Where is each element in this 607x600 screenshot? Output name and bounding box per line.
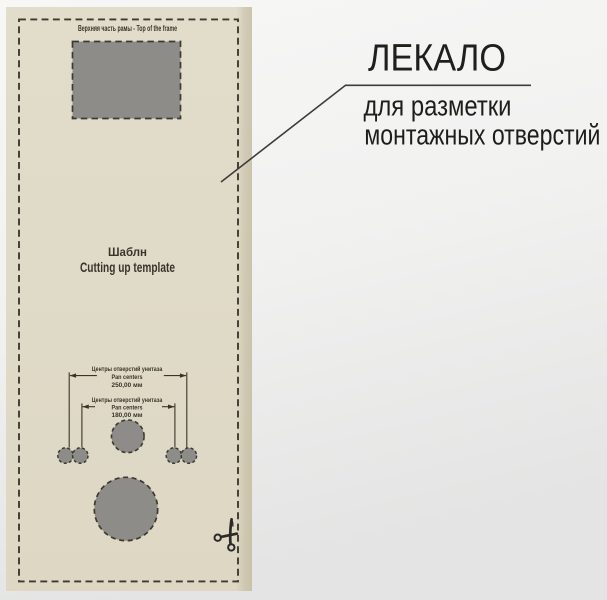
- svg-text:ЛЕКАЛО: ЛЕКАЛО: [368, 38, 506, 80]
- svg-text:Cutting up template: Cutting up template: [80, 260, 175, 275]
- svg-text:Pan centers: Pan centers: [112, 405, 143, 412]
- svg-text:250,00 мм: 250,00 мм: [112, 382, 143, 389]
- svg-text:Шаблн: Шаблн: [108, 247, 147, 259]
- svg-text:Центры отверстий унитаза: Центры отверстий унитаза: [92, 365, 163, 373]
- svg-text:для разметки: для разметки: [364, 91, 512, 123]
- svg-text:180,00 мм: 180,00 мм: [112, 412, 143, 419]
- svg-text:Pan centers: Pan centers: [112, 374, 143, 381]
- svg-text:монтажных отверстий: монтажных отверстий: [364, 119, 600, 151]
- svg-text:Центры отверстий унитаза: Центры отверстий унитаза: [92, 396, 163, 404]
- svg-text:Верхняя часть рамы - Top of th: Верхняя часть рамы - Top of the frame: [78, 24, 177, 33]
